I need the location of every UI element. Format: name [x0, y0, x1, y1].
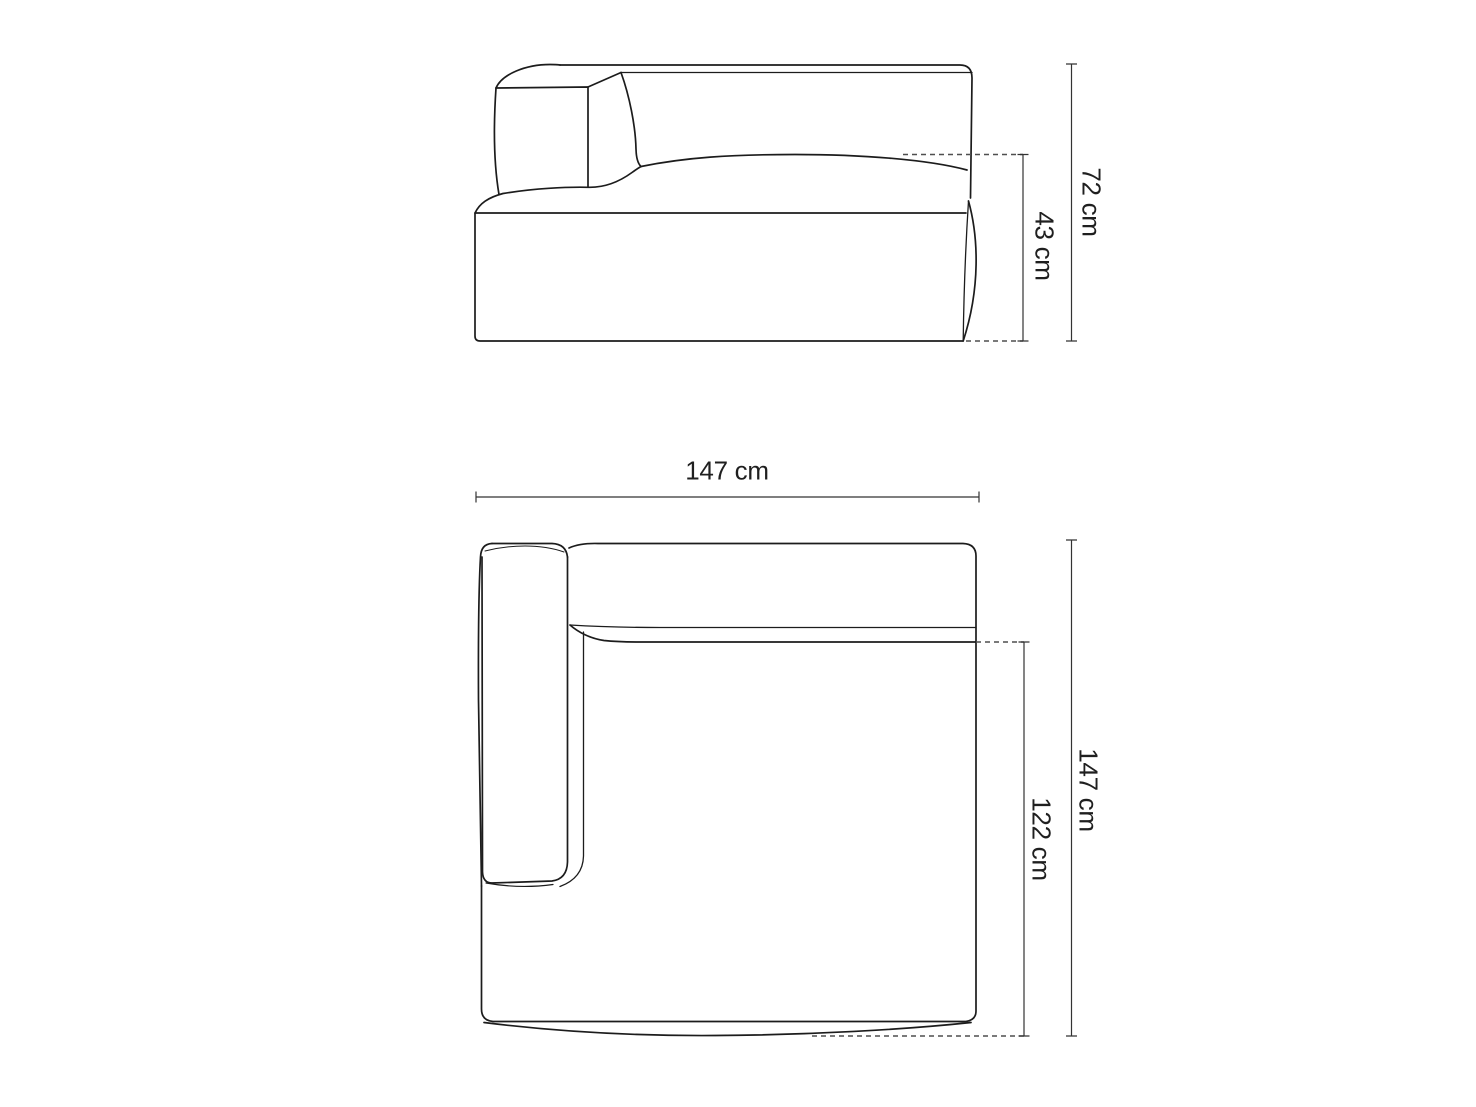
side-view-extension-lines	[903, 155, 1023, 342]
side-seat-top	[641, 155, 967, 171]
side-base	[475, 213, 966, 341]
side-seat-front	[475, 167, 641, 214]
dimension-label-top-seat-depth: 122 cm	[1026, 797, 1057, 880]
top-bottom-sag	[484, 1023, 971, 1036]
top-view-drawing	[478, 543, 976, 1035]
side-view-drawing	[475, 65, 976, 342]
side-armrest-left	[494, 88, 499, 195]
dimension-label-top-depth: 147 cm	[1073, 748, 1104, 831]
diagram-canvas	[0, 0, 1476, 1107]
top-view-extension-lines	[812, 642, 1024, 1036]
side-cushion-chord	[963, 201, 968, 341]
side-backrest-curve	[621, 73, 641, 167]
dimension-label-side-height: 72 cm	[1076, 167, 1107, 236]
top-armrest-outline	[482, 557, 568, 883]
side-view-dimension-lines	[1018, 64, 1078, 341]
top-seat-left-edge	[560, 632, 584, 887]
top-armrest-top	[492, 544, 568, 558]
dimension-diagram: 72 cm 43 cm 147 cm 147 cm 122 cm	[0, 0, 1476, 1107]
dimension-label-top-width: 147 cm	[685, 456, 768, 487]
top-body-left-edge	[478, 544, 492, 887]
side-seat-height-line	[1018, 155, 1029, 342]
top-body-outline	[482, 543, 977, 1021]
side-armrest-slant	[588, 73, 621, 88]
top-view-dimension-lines	[476, 492, 1077, 1037]
side-armrest-top-arc	[496, 65, 560, 89]
top-backrest-line	[570, 625, 976, 628]
top-armrest-top-sag	[485, 546, 564, 552]
dimension-label-side-seat-height: 43 cm	[1029, 211, 1060, 280]
top-width-line	[476, 492, 979, 503]
side-armrest-face	[496, 87, 588, 187]
